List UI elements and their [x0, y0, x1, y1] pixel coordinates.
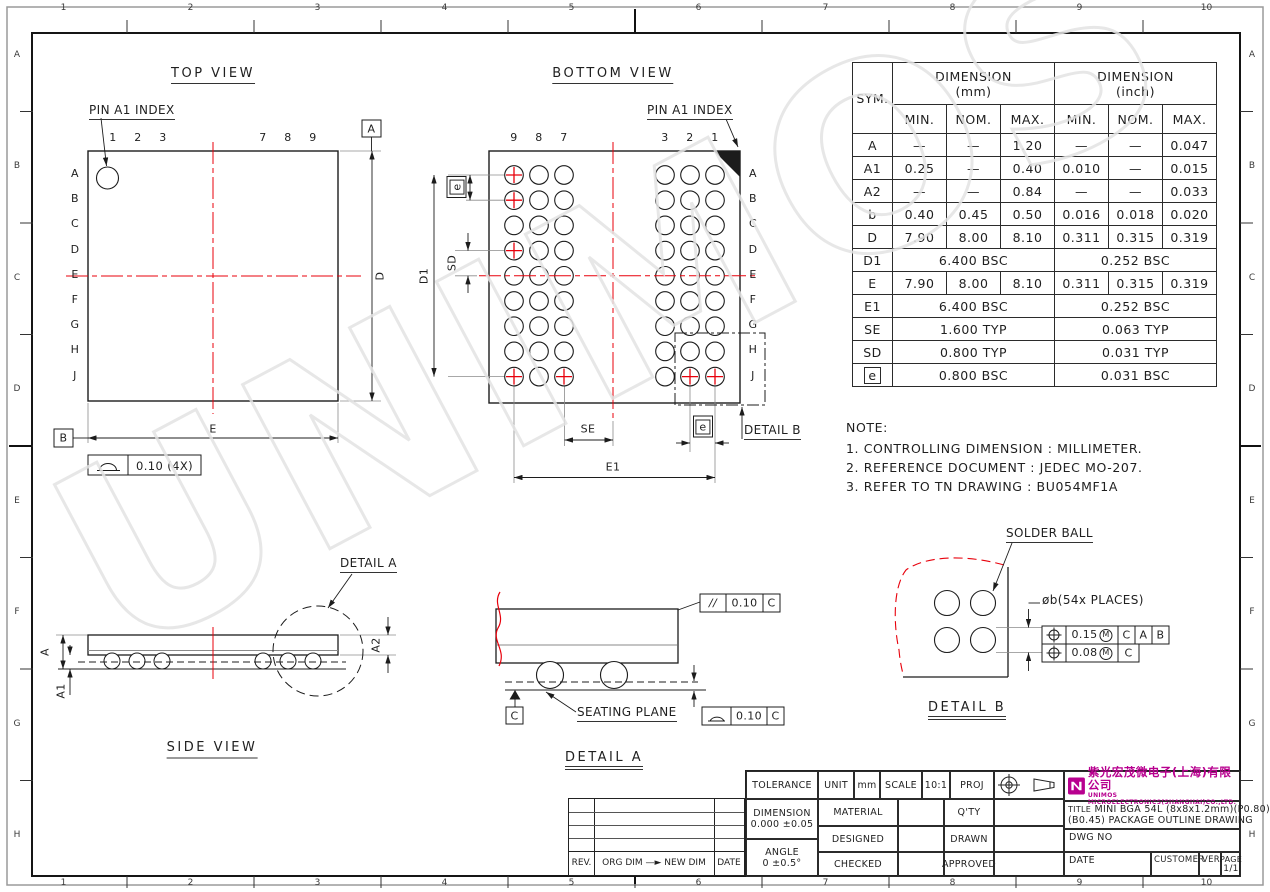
bottom-view-row-label: D	[746, 243, 760, 256]
dimension-tolerance-value: 0.000 ±0.05	[751, 819, 814, 830]
scale-label: SCALE	[880, 771, 922, 799]
unit-value: mm	[854, 771, 880, 799]
solder-ball-pad	[706, 191, 725, 210]
approved-value	[994, 852, 1064, 877]
table-value-cell: 0.315	[1109, 226, 1163, 249]
note-line: 2. REFERENCE DOCUMENT : JEDEC MO-207.	[846, 460, 1143, 475]
border-row-label: D	[10, 384, 24, 394]
top-view-col-label: 8	[281, 131, 295, 144]
fcf2-tolerance: 0.08	[1071, 646, 1097, 659]
unimos-logo-icon	[1068, 776, 1085, 796]
border-col-label: 9	[1073, 878, 1087, 888]
border-row-label: H	[1245, 830, 1259, 840]
table-value-cell: 0.40	[893, 203, 947, 226]
solder-ball-pad	[706, 241, 725, 260]
material-label: MATERIAL	[818, 799, 898, 826]
table-header-cell: DIMENSION(inch)	[1055, 63, 1217, 105]
solder-ball-pad	[530, 241, 549, 260]
solder-ball-pad	[706, 342, 725, 361]
table-value-cell: —	[893, 134, 947, 157]
table-header-cell: NOM.	[1109, 105, 1163, 134]
table-value-cell: 0.319	[1163, 226, 1217, 249]
top-view-flatness-value: 0.10 (4X)	[136, 459, 193, 473]
parallelism-datum: C	[767, 597, 775, 610]
table-span-cell: 6.400 BSC	[893, 295, 1055, 318]
border-col-label: 6	[692, 3, 706, 13]
border-row-label: G	[1245, 719, 1259, 729]
table-value-cell: —	[947, 180, 1001, 203]
solder-ball-pad	[681, 241, 700, 260]
table-value-cell: 1.20	[1001, 134, 1055, 157]
drawn-value	[994, 826, 1064, 852]
border-row-label: C	[1245, 273, 1259, 283]
qty-label: Q'TY	[944, 799, 994, 826]
table-value-cell: 0.020	[1163, 203, 1217, 226]
angle-tolerance-value: 0 ±0.5°	[763, 858, 802, 869]
table-value-cell: 7.90	[893, 272, 947, 295]
table-value-cell: 0.45	[947, 203, 1001, 226]
table-span-cell: 6.400 BSC	[893, 249, 1055, 272]
side-view-title: SIDE VIEW	[167, 740, 258, 759]
table-sym-cell: D1	[853, 249, 893, 272]
bottom-view-row-label: A	[746, 167, 760, 180]
solder-ball-pad	[555, 166, 574, 185]
table-value-cell: 0.018	[1109, 203, 1163, 226]
top-view-col-label: 1	[106, 131, 120, 144]
material-value	[898, 799, 944, 826]
ball-diameter-callout: øb(54x PLACES)	[1042, 593, 1144, 607]
drawing-title-cell: TITLE MINI BGA 54L (8x8x1.2mm)(P0.80) (B…	[1064, 801, 1241, 829]
dim-a-label: A	[39, 648, 52, 656]
fcf2-modifier-icon: M	[1100, 647, 1113, 660]
detail-b-title: DETAIL B	[928, 700, 1006, 717]
table-value-cell: 0.84	[1001, 180, 1055, 203]
table-sym-cell: SD	[853, 341, 893, 364]
solder-ball-pad	[656, 216, 675, 235]
bottom-view-row-label: B	[746, 192, 760, 205]
qty-value	[994, 799, 1064, 826]
dim-d1-label: D1	[418, 268, 431, 284]
solder-ball-pad	[555, 317, 574, 336]
bottom-view-col-label: 1	[708, 131, 722, 144]
top-view-col-label: 2	[131, 131, 145, 144]
boxed-sym: e	[864, 367, 880, 384]
bottom-view-row-label: J	[746, 369, 760, 382]
fcf1-datum-2: A	[1140, 629, 1148, 642]
table-header-cell: NOM.	[947, 105, 1001, 134]
scale-value: 10:1	[922, 771, 950, 799]
top-view-row-label: E	[68, 268, 82, 281]
top-view-row-label: C	[68, 217, 82, 230]
note-title: NOTE:	[846, 420, 888, 435]
border-row-label: G	[10, 719, 24, 729]
angle-tolerance-cell: ANGLE 0 ±0.5°	[746, 839, 818, 877]
solder-ball-pad	[555, 241, 574, 260]
table-value-cell: 0.319	[1163, 272, 1217, 295]
border-col-label: 10	[1200, 3, 1214, 13]
side-view-linework	[58, 574, 396, 696]
table-span-cell: 0.800 BSC	[893, 364, 1055, 387]
solder-ball-pad	[530, 191, 549, 210]
table-value-cell: 0.311	[1055, 226, 1109, 249]
detail-a-title: DETAIL A	[565, 750, 643, 767]
solder-ball-pad	[530, 216, 549, 235]
top-view-row-label: F	[68, 293, 82, 306]
table-value-cell: 8.00	[947, 226, 1001, 249]
fcf1-modifier-icon: M	[1100, 629, 1113, 642]
rev-header: REV.	[569, 851, 594, 875]
solder-ball-pad	[656, 166, 675, 185]
top-view-row-label: G	[68, 318, 82, 331]
table-sym-cell: D	[853, 226, 893, 249]
table-value-cell: —	[947, 134, 1001, 157]
table-value-cell: 0.015	[1163, 157, 1217, 180]
solder-ball-label: SOLDER BALL	[1006, 526, 1093, 543]
approved-label: APPROVED	[944, 852, 994, 877]
table-span-cell: 0.800 TYP	[893, 341, 1055, 364]
top-view-title: TOP VIEW	[171, 66, 255, 84]
bottom-view-col-label: 2	[683, 131, 697, 144]
table-value-cell: 0.010	[1055, 157, 1109, 180]
datum-b-label: B	[60, 432, 68, 445]
top-view-col-label: 3	[156, 131, 170, 144]
bottom-view-col-label: 7	[557, 131, 571, 144]
parallelism-symbol: //	[709, 596, 717, 609]
table-span-cell: 0.031 BSC	[1055, 364, 1217, 387]
dim-d-label: D	[374, 272, 387, 281]
solder-ball-pad	[706, 216, 725, 235]
rev-row-line	[569, 825, 744, 826]
table-value-cell: 0.016	[1055, 203, 1109, 226]
top-view-row-label: D	[68, 243, 82, 256]
dim-e-pitch-top-label: e	[450, 179, 463, 194]
revision-table: REV. ORG DIM —► NEW DIM DATE	[568, 798, 745, 876]
solder-ball-pad	[530, 292, 549, 311]
border-row-label: H	[10, 830, 24, 840]
bottom-view-pin-a1-label: PIN A1 INDEX	[647, 103, 733, 120]
solder-ball-pad	[681, 342, 700, 361]
bottom-view-row-label: G	[746, 318, 760, 331]
datum-a-label: A	[368, 122, 376, 135]
dim-e-pitch-bottom-label: e	[695, 420, 710, 433]
dim-a2-label: A2	[370, 637, 383, 652]
fcf1-datum-3: B	[1157, 629, 1165, 642]
bottom-view-row-label: E	[746, 268, 760, 281]
border-row-label: A	[10, 50, 24, 60]
border-row-label: F	[1245, 607, 1259, 617]
table-sym-cell: SE	[853, 318, 893, 341]
company-logo-block: 紫光宏茂微电子(上海)有限公司 UNIMOS MICROELECTRONICS(…	[1064, 771, 1241, 801]
top-view-row-label: A	[68, 167, 82, 180]
boxed-e-bottom: e	[695, 419, 710, 434]
table-value-cell: 0.311	[1055, 272, 1109, 295]
dim-se-label: SE	[581, 423, 596, 436]
flatness-value: 0.10	[736, 710, 762, 723]
table-value-cell: —	[1055, 134, 1109, 157]
solder-ball-pad	[505, 317, 524, 336]
solder-ball-pad	[656, 367, 675, 386]
top-view-col-label: 7	[256, 131, 270, 144]
fcf1-tolerance: 0.15	[1071, 628, 1097, 641]
top-view-col-label: 9	[306, 131, 320, 144]
solder-ball-pad	[681, 166, 700, 185]
table-sym-cell: E	[853, 272, 893, 295]
table-value-cell: —	[1109, 157, 1163, 180]
top-view-pin-a1-label: PIN A1 INDEX	[89, 103, 175, 120]
rev-change-header: ORG DIM —► NEW DIM	[594, 851, 714, 875]
fcf1-value: 0.15M	[1071, 628, 1112, 642]
bottom-view-col-label: 9	[507, 131, 521, 144]
dimension-table-grid: SYM.DIMENSION(mm)DIMENSION(inch)MIN.NOM.…	[852, 62, 1217, 387]
table-value-cell: 8.00	[947, 272, 1001, 295]
bottom-view-row-label: C	[746, 217, 760, 230]
solder-ball-pad	[530, 317, 549, 336]
table-span-cell: 1.600 TYP	[893, 318, 1055, 341]
table-sym-cell: e	[853, 364, 893, 387]
table-sym-cell: A2	[853, 180, 893, 203]
table-value-cell: —	[1109, 180, 1163, 203]
fcf2-value: 0.08M	[1071, 646, 1112, 660]
top-view-row-label: H	[68, 343, 82, 356]
border-row-label: A	[1245, 50, 1259, 60]
bottom-view-col-label: 3	[658, 131, 672, 144]
top-view-row-label: B	[68, 192, 82, 205]
table-span-cell: 0.031 TYP	[1055, 341, 1217, 364]
table-value-cell: 0.033	[1163, 180, 1217, 203]
customer-cell: CUSTOMER	[1151, 852, 1199, 877]
note-line: 3. REFER TO TN DRAWING : BU054MF1A	[846, 479, 1118, 494]
solder-ball-pad	[656, 241, 675, 260]
solder-ball-pad	[530, 342, 549, 361]
border-col-label: 1	[57, 3, 71, 13]
table-value-cell: 8.10	[1001, 226, 1055, 249]
border-row-label: C	[10, 273, 24, 283]
drawing-title-line2: (B0.45) PACKAGE OUTLINE DRAWING	[1068, 815, 1253, 826]
dim-a1-label: A1	[55, 683, 68, 698]
solder-ball-pad	[505, 292, 524, 311]
bottom-view-row-label: H	[746, 343, 760, 356]
checked-value	[898, 852, 944, 877]
bottom-view-row-label: F	[746, 293, 760, 306]
solder-ball-pad	[681, 191, 700, 210]
flatness-datum: C	[771, 710, 779, 723]
tolerance-label: TOLERANCE	[746, 771, 818, 799]
table-sym-cell: A1	[853, 157, 893, 180]
dwg-no-cell: DWG NO	[1064, 829, 1241, 852]
solder-ball-pad	[656, 292, 675, 311]
table-value-cell: —	[1109, 134, 1163, 157]
table-value-cell: 0.50	[1001, 203, 1055, 226]
solder-ball-pad	[555, 292, 574, 311]
table-header-cell: SYM.	[853, 63, 893, 134]
bottom-view-linework	[434, 119, 765, 483]
border-col-label: 2	[184, 3, 198, 13]
table-value-cell: 0.25	[893, 157, 947, 180]
border-col-label: 5	[565, 3, 579, 13]
bottom-view-col-label: 8	[532, 131, 546, 144]
date-cell: DATE	[1064, 852, 1151, 877]
border-col-label: 8	[946, 3, 960, 13]
border-row-label: B	[1245, 161, 1259, 171]
table-header-cell: MAX.	[1001, 105, 1055, 134]
drawing-title-line1: MINI BGA 54L (8x8x1.2mm)(P0.80)	[1094, 804, 1270, 815]
solder-ball-pad	[555, 342, 574, 361]
solder-ball-pad	[505, 342, 524, 361]
solder-ball-pad	[505, 216, 524, 235]
angle-label: ANGLE	[765, 847, 799, 858]
designed-label: DESIGNED	[818, 826, 898, 852]
table-value-cell: 0.047	[1163, 134, 1217, 157]
solder-ball-pad	[530, 367, 549, 386]
rev-date-header: DATE	[714, 851, 744, 875]
ver-cell: VER.	[1199, 852, 1221, 877]
designed-value	[898, 826, 944, 852]
projection-label: PROJ	[950, 771, 994, 799]
table-value-cell: —	[947, 157, 1001, 180]
solder-ball-pad	[555, 191, 574, 210]
page-value: 1/1	[1223, 864, 1238, 874]
solder-ball-pad	[681, 292, 700, 311]
datum-c-label: C	[510, 709, 518, 722]
table-value-cell: 8.10	[1001, 272, 1055, 295]
border-col-label: 1	[57, 878, 71, 888]
table-value-cell: 7.90	[893, 226, 947, 249]
rev-row-line	[569, 838, 744, 839]
border-col-label: 8	[946, 878, 960, 888]
table-header-cell: MAX.	[1163, 105, 1217, 134]
border-col-label: 9	[1073, 3, 1087, 13]
border-col-label: 5	[565, 878, 579, 888]
border-col-label: 2	[184, 878, 198, 888]
parallelism-value: 0.10	[731, 597, 757, 610]
detail-a-ref-label: DETAIL A	[340, 556, 397, 573]
drawn-label: DRAWN	[944, 826, 994, 852]
table-header-cell: MIN.	[893, 105, 947, 134]
border-col-label: 3	[311, 3, 325, 13]
table-value-cell: 0.40	[1001, 157, 1055, 180]
checked-label: CHECKED	[818, 852, 898, 877]
top-view-linework	[54, 118, 381, 635]
table-sym-cell: E1	[853, 295, 893, 318]
projection-symbol-icon	[994, 771, 1064, 799]
detail-b-ref-label: DETAIL B	[744, 423, 801, 440]
unit-label: UNIT	[818, 771, 854, 799]
solder-ball-pad	[706, 292, 725, 311]
dim-sd-label: SD	[446, 255, 459, 271]
third-angle-projection-icon	[996, 772, 1062, 798]
solder-ball-pad	[706, 166, 725, 185]
border-row-label: E	[1245, 496, 1259, 506]
solder-ball-pad	[656, 342, 675, 361]
fcf2-datum-1: C	[1124, 647, 1132, 660]
dim-e-label: E	[209, 423, 216, 436]
table-sym-cell: A	[853, 134, 893, 157]
fcf1-datum-1: C	[1122, 629, 1130, 642]
company-name-cn: 紫光宏茂微电子(上海)有限公司	[1088, 766, 1240, 792]
table-value-cell: —	[1055, 180, 1109, 203]
boxed-e-top: e	[449, 179, 464, 194]
border-col-label: 10	[1200, 878, 1214, 888]
table-header-cell: MIN.	[1055, 105, 1109, 134]
table-span-cell: 0.063 TYP	[1055, 318, 1217, 341]
border-col-label: 3	[311, 878, 325, 888]
solder-ball-pad	[555, 216, 574, 235]
table-value-cell: —	[893, 180, 947, 203]
page-cell: PAGE 1/1	[1221, 852, 1241, 877]
rev-row-line	[569, 812, 744, 813]
page-label: PAGE	[1220, 855, 1242, 864]
table-span-cell: 0.252 BSC	[1055, 295, 1217, 318]
dimension-table: SYM.DIMENSION(mm)DIMENSION(inch)MIN.NOM.…	[852, 62, 1217, 387]
border-col-label: 4	[438, 3, 452, 13]
solder-ball-pad	[656, 317, 675, 336]
border-row-label: D	[1245, 384, 1259, 394]
note-line: 1. CONTROLLING DIMENSION : MILLIMETER.	[846, 441, 1142, 456]
title-label: TITLE	[1068, 805, 1091, 814]
border-row-label: E	[10, 496, 24, 506]
seating-plane-label: SEATING PLANE	[577, 705, 677, 722]
border-col-label: 7	[819, 878, 833, 888]
solder-ball-pad	[681, 216, 700, 235]
border-col-label: 4	[438, 878, 452, 888]
table-span-cell: 0.252 BSC	[1055, 249, 1217, 272]
table-sym-cell: b	[853, 203, 893, 226]
table-header-cell: DIMENSION(mm)	[893, 63, 1055, 105]
title-block: TOLERANCE DIMENSION 0.000 ±0.05 ANGLE 0 …	[745, 770, 1240, 876]
dimension-label: DIMENSION	[753, 808, 811, 819]
dim-e1-label: E1	[606, 461, 621, 474]
dimension-tolerance-cell: DIMENSION 0.000 ±0.05	[746, 799, 818, 839]
top-view-row-label: J	[68, 369, 82, 382]
solder-ball-pad	[656, 191, 675, 210]
border-row-label: B	[10, 161, 24, 171]
bottom-view-title: BOTTOM VIEW	[552, 66, 673, 84]
border-col-label: 6	[692, 878, 706, 888]
border-col-label: 7	[819, 3, 833, 13]
table-value-cell: 0.315	[1109, 272, 1163, 295]
solder-ball-pad	[530, 166, 549, 185]
border-row-label: F	[10, 607, 24, 617]
drawing-sheet: TOP VIEW PIN A1 INDEX A D E B 0.10 (4X) …	[0, 0, 1270, 892]
